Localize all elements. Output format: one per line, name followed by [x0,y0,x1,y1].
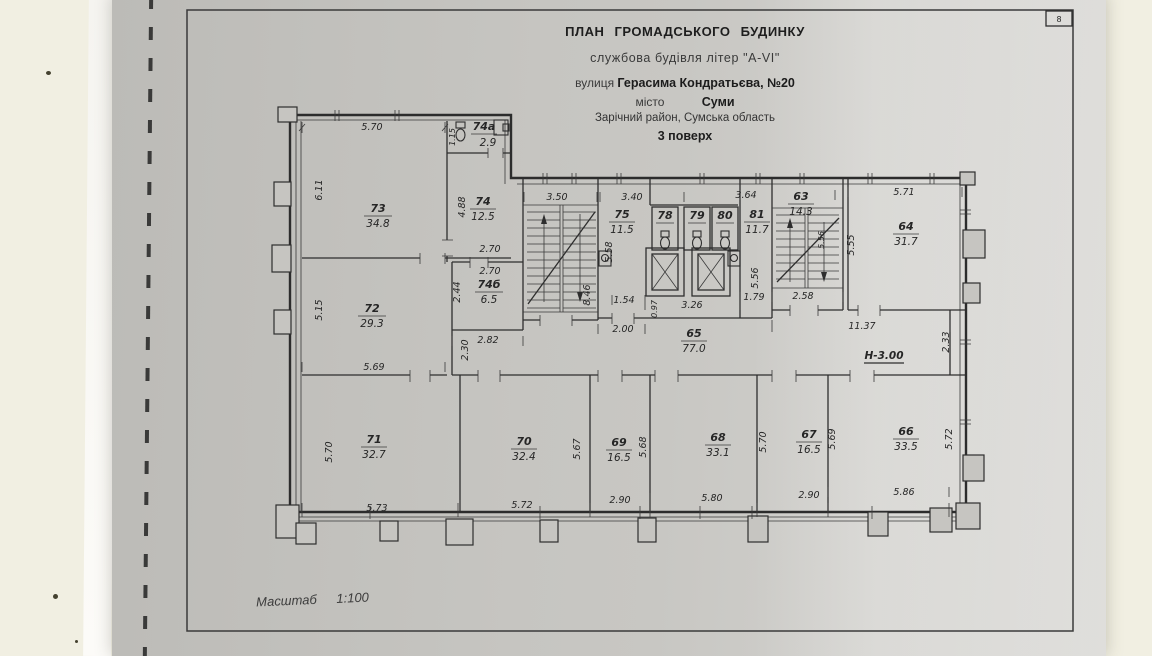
dimension-label: 5.71 [893,187,914,198]
dimension-label: 2.33 [941,331,952,352]
svg-text:71: 71 [366,433,381,446]
dimension-label: 3.64 [735,190,756,201]
dimension-label: 5.69 [827,428,838,449]
svg-text:66: 66 [898,425,914,438]
svg-text:77.0: 77.0 [682,343,706,355]
stair-down-arrow [821,272,827,282]
dimension-label: 5.80 [701,493,722,504]
room-label-79: 79 [688,209,706,223]
closet-icon [494,120,509,135]
svg-text:16.5: 16.5 [607,452,631,464]
dimension-label: 3.26 [681,300,702,311]
room-label-78: 78 [656,209,674,223]
room-label-72: 7229.3 [358,302,386,330]
room-label-74a: 74а2.9 [471,120,497,149]
svg-text:73: 73 [370,202,386,215]
scale-value: 1:100 [336,590,369,606]
svg-text:72: 72 [364,302,380,315]
dimension-label: 6.11 [314,179,325,200]
svg-text:80: 80 [717,209,733,222]
svg-text:32.4: 32.4 [512,451,535,463]
svg-text:31.7: 31.7 [894,236,918,248]
room-label-70: 7032.4 [511,435,537,463]
dimension-label: 5.56 [750,267,761,288]
dimension-label: 5.70 [324,441,335,462]
dimension-label: 2.70 [479,244,500,255]
dimension-label: 5.15 [314,299,325,320]
dimension-label: 5.70 [758,431,769,452]
dimension-label: 0.97 [650,299,659,318]
svg-text:11.5: 11.5 [610,224,634,236]
svg-text:74а: 74а [473,120,496,133]
district-line: Зарічний район, Сумська область [540,112,830,124]
svg-text:34.8: 34.8 [366,218,390,230]
dimension-label: 5.67 [572,438,583,459]
dimension-label: 4.88 [457,196,468,217]
dimension-label: 5.86 [893,487,914,498]
room-label-74: 7412.5 [470,195,496,223]
dimension-label: 2.58 [792,291,813,302]
room-label-71: 7132.7 [361,433,387,461]
dimension-label: 5.73 [366,503,387,514]
svg-text:14.3: 14.3 [789,206,812,218]
staircase [772,208,843,288]
dimension-label: 5.56 [817,231,826,249]
room-label-68: 6833.1 [705,431,731,459]
room-label-69: 6916.5 [606,436,632,464]
dimension-label: 2.82 [477,335,498,346]
svg-text:33.5: 33.5 [894,441,918,453]
inner-walls [302,121,966,512]
scale-label: Масштаб [256,592,317,610]
dimension-label: 11.37 [848,321,875,332]
dimension-label: 1.15 [448,128,457,146]
dimension-label: 3.40 [621,192,642,203]
dimension-label: 5.55 [846,234,857,255]
room-label-67: 6716.5 [796,428,822,456]
city-value: Суми [702,95,735,109]
elevator-shaft [646,248,684,296]
dimension-label: 2.30 [460,339,471,360]
photo-of-floor-plan-document: 8 [0,0,1152,648]
svg-text:65: 65 [686,327,702,340]
svg-text:67: 67 [801,428,817,441]
city-line: місто Суми [540,95,830,109]
svg-text:2.9: 2.9 [480,137,497,149]
room-label-73: 7334.8 [364,202,392,230]
dimension-label: 5.69 [363,362,384,373]
dimension-label: 1.54 [613,295,634,306]
dimension-label: 2.90 [798,490,819,501]
toilet-icon [721,231,730,249]
svg-text:63: 63 [793,190,809,203]
svg-text:81: 81 [749,208,764,221]
svg-text:74б: 74б [478,278,501,291]
stair-up-arrow [541,214,547,224]
room-label-74b: 74б6.5 [475,278,503,306]
room-label-63: 6314.3 [788,190,814,218]
svg-text:75: 75 [614,208,630,221]
sheet-corner-mark: 8 [1056,15,1061,24]
dimension-label: 8.46 [582,284,593,305]
building-description: службова будівля літер "А-VI" [540,51,830,65]
elevator-shaft [692,248,730,296]
toilet-icon [693,231,702,249]
dimension-label: 5.72 [944,428,955,449]
dimension-label: 2.70 [479,266,500,277]
dimension-label: 5.70 [361,122,382,133]
svg-text:69: 69 [611,436,627,449]
room-label-81: 8111.7 [744,208,770,236]
svg-text:79: 79 [689,209,705,222]
dimension-label: 2.44 [452,281,463,302]
dimension-label: 3.50 [546,192,567,203]
toilet-icon [456,122,465,141]
room-label-75: 7511.5 [609,208,635,236]
room-label-65: 6577.0 [681,327,707,355]
svg-text:74: 74 [475,195,490,208]
room-labels: 7334.8 74а2.9 7412.5 74б6.5 7229.3 7511.… [358,120,919,464]
title-block: ПЛАН ГРОМАДСЬКОГО БУДИНКУ службова будів… [540,24,830,143]
city-label: місто [635,95,664,109]
toilet-icon [661,231,670,249]
floor-line: 3 поверх [540,129,830,143]
dimension-label: 2.00 [612,324,633,335]
svg-text:68: 68 [710,431,726,444]
svg-text:12.5: 12.5 [471,211,495,223]
dimension-label: 5.68 [638,436,649,457]
plan-title: ПЛАН ГРОМАДСЬКОГО БУДИНКУ [540,24,830,39]
svg-text:70: 70 [516,435,532,448]
street-value: Герасима Кондратьєва, №20 [617,76,794,90]
street-label: вулиця [575,76,614,90]
dimension-label: 5.72 [511,500,532,511]
svg-text:32.7: 32.7 [362,449,386,461]
svg-text:64: 64 [898,220,913,233]
street-line: вулиця Герасима Кондратьєва, №20 [540,76,830,90]
svg-text:33.1: 33.1 [706,447,729,459]
dimension-label: 2.90 [609,495,630,506]
room-label-66: 6633.5 [893,425,919,453]
svg-text:6.5: 6.5 [481,294,498,306]
svg-text:11.7: 11.7 [745,224,769,236]
height-note: Н-3.00 [864,350,904,363]
svg-text:29.3: 29.3 [360,318,383,330]
svg-text:78: 78 [657,209,673,222]
dimension-label: 5.58 [604,241,615,262]
dimension-label: 1.79 [743,292,764,303]
svg-text:16.5: 16.5 [797,444,821,456]
room-label-80: 80 [716,209,734,223]
svg-text:Н-3.00: Н-3.00 [864,350,903,362]
room-label-64: 6431.7 [893,220,919,248]
